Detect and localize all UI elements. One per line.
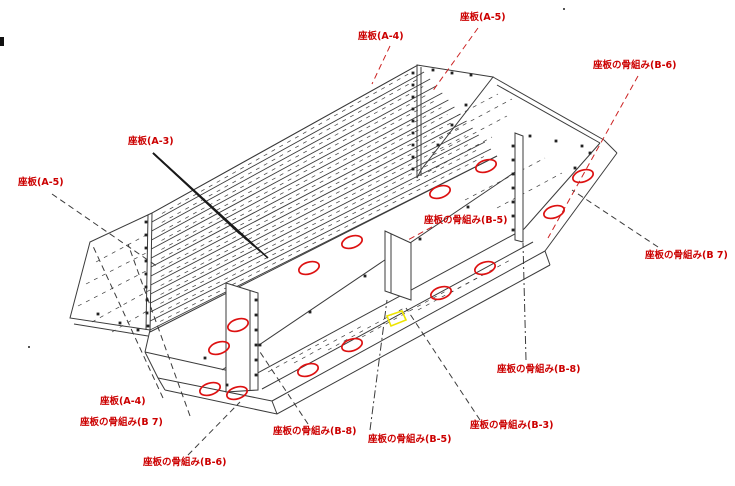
seat-slat-line bbox=[151, 100, 448, 258]
fastener-dot bbox=[529, 135, 532, 138]
fastener-dot bbox=[255, 374, 258, 377]
hidden-frame-dash bbox=[162, 80, 417, 223]
fastener-dot bbox=[467, 206, 470, 209]
fastener-dot bbox=[226, 384, 229, 387]
fastener-dot bbox=[145, 221, 148, 224]
fastener-dot bbox=[512, 201, 515, 204]
leader-line-zaban-a5-top bbox=[432, 28, 478, 92]
frame-edge bbox=[150, 213, 152, 332]
fastener-dot bbox=[432, 69, 435, 72]
fastener-dot bbox=[412, 96, 415, 99]
leader-line-honegumi-b6-bottom bbox=[188, 402, 240, 455]
frame-edge bbox=[545, 251, 550, 265]
part-label-honegumi-b5-top: 座板の骨組み(B-5) bbox=[424, 215, 507, 226]
part-label-honegumi-b5-bottom: 座板の骨組み(B-5) bbox=[368, 434, 451, 445]
fastener-dot bbox=[255, 359, 258, 362]
fastener-dot bbox=[309, 311, 312, 314]
frame-edge bbox=[145, 352, 158, 378]
leader-line-honegumi-b8-right bbox=[523, 243, 526, 360]
frame-edge bbox=[524, 143, 600, 229]
fastener-dot bbox=[589, 152, 592, 155]
fastener-dot bbox=[451, 72, 454, 75]
fastener-dot bbox=[465, 104, 468, 107]
fastener-dot bbox=[137, 329, 140, 332]
fastener-dot bbox=[255, 299, 258, 302]
fastener-dot bbox=[97, 313, 100, 316]
fastener-dot bbox=[146, 312, 149, 315]
fastener-dot bbox=[412, 132, 415, 135]
seat-slat-line bbox=[152, 79, 430, 231]
seat-slat-line bbox=[150, 142, 485, 312]
fastener-dot bbox=[255, 314, 258, 317]
scan-artifact bbox=[0, 37, 4, 46]
fastener-dot bbox=[512, 229, 515, 232]
hole-ellipse bbox=[428, 183, 452, 201]
frame-edge bbox=[158, 378, 165, 390]
frame-edge bbox=[226, 283, 258, 392]
hole-ellipse bbox=[429, 284, 453, 302]
part-label-zaban-a4-bottom: 座板(A-4) bbox=[100, 396, 146, 407]
frame-edge bbox=[493, 77, 604, 140]
part-label-zaban-a3: 座板(A-3) bbox=[128, 136, 174, 147]
leader-line-honegumi-b8-bottom bbox=[260, 352, 308, 424]
assembly-diagram-page: 座板(A-4)座板(A-5)座板の骨組み(B-6)座板(A-3)座板(A-5)座… bbox=[0, 0, 735, 486]
leader-line-zaban-a4-top bbox=[372, 46, 390, 84]
part-label-honegumi-b8-bottom: 座板の骨組み(B-8) bbox=[273, 426, 356, 437]
fastener-dot bbox=[204, 357, 207, 360]
hidden-frame-dash bbox=[162, 87, 424, 232]
fastener-dot bbox=[437, 144, 440, 147]
fastener-dot bbox=[581, 145, 584, 148]
fastener-dot bbox=[412, 108, 415, 111]
part-label-honegumi-b7-right: 座板の骨組み(B 7) bbox=[645, 250, 728, 261]
part-label-zaban-a5-top: 座板(A-5) bbox=[460, 12, 506, 23]
fastener-dot bbox=[145, 234, 148, 237]
hidden-frame-dash bbox=[268, 339, 328, 372]
fastener-dot bbox=[146, 299, 149, 302]
hole-ellipse bbox=[297, 259, 321, 277]
leader-line-zaban-a4-bottom bbox=[92, 244, 163, 398]
frame-edge bbox=[604, 140, 617, 153]
part-label-zaban-a5-left: 座板(A-5) bbox=[18, 177, 64, 188]
fastener-dot bbox=[512, 215, 515, 218]
hidden-frame-dash bbox=[449, 94, 498, 120]
fastener-dot bbox=[470, 74, 473, 77]
fastener-dot bbox=[145, 260, 148, 263]
frame-edge bbox=[497, 85, 600, 143]
fastener-dot bbox=[145, 247, 148, 250]
fastener-dot bbox=[147, 325, 150, 328]
hidden-frame-dash bbox=[160, 150, 478, 313]
fastener-dot bbox=[412, 156, 415, 159]
fastener-dot bbox=[364, 275, 367, 278]
frame-edge bbox=[545, 153, 617, 251]
hidden-frame-dash bbox=[161, 94, 429, 241]
fastener-dot bbox=[255, 329, 258, 332]
part-label-honegumi-b6-top: 座板の骨組み(B-6) bbox=[593, 60, 676, 71]
fastener-dot bbox=[412, 120, 415, 123]
fastener-dot bbox=[412, 144, 415, 147]
part-label-zaban-a4-top: 座板(A-4) bbox=[358, 31, 404, 42]
leader-line-zaban-a5-left bbox=[52, 194, 158, 267]
fastener-dot bbox=[451, 124, 454, 127]
assembly-drawing bbox=[0, 0, 735, 486]
fastener-dot bbox=[574, 167, 577, 170]
hole-ellipse bbox=[340, 233, 364, 251]
frame-edge bbox=[515, 133, 523, 242]
part-label-honegumi-b7-bottom: 座板の骨組み(B 7) bbox=[80, 417, 163, 428]
fastener-dot bbox=[512, 173, 515, 176]
fastener-dot bbox=[145, 286, 148, 289]
fastener-dot bbox=[412, 168, 415, 171]
fastener-dot bbox=[512, 187, 515, 190]
hidden-frame-dash bbox=[161, 136, 466, 295]
part-label-honegumi-b3-bottom: 座板の骨組み(B-3) bbox=[470, 420, 553, 431]
frame-edge bbox=[385, 231, 411, 300]
leader-line-honegumi-b3-bottom bbox=[406, 308, 480, 420]
fastener-dot bbox=[419, 238, 422, 241]
frame-edge bbox=[272, 401, 277, 414]
hidden-frame-dash bbox=[428, 137, 492, 172]
leader-line-honegumi-b5-bottom bbox=[370, 300, 387, 430]
hidden-frame-dash bbox=[86, 252, 148, 284]
frame-edge bbox=[145, 330, 150, 352]
seat-slat-line bbox=[150, 149, 491, 321]
part-label-honegumi-b6-bottom: 座板の骨組み(B-6) bbox=[143, 457, 226, 468]
scan-artifact bbox=[563, 8, 565, 10]
scan-artifact bbox=[28, 346, 30, 348]
leader-line-honegumi-b6-top bbox=[548, 76, 638, 238]
fastener-dot bbox=[412, 84, 415, 87]
seat-slat-line bbox=[151, 93, 442, 249]
fastener-dot bbox=[255, 344, 258, 347]
fastener-dot bbox=[555, 140, 558, 143]
part-label-honegumi-b8-right: 座板の骨組み(B-8) bbox=[497, 364, 580, 375]
fastener-dot bbox=[145, 273, 148, 276]
fastener-dot bbox=[119, 322, 122, 325]
fastener-dot bbox=[412, 72, 415, 75]
fastener-dot bbox=[512, 159, 515, 162]
hidden-frame-dash bbox=[96, 234, 148, 262]
frame-edge bbox=[70, 213, 152, 330]
hidden-frame-dash bbox=[78, 270, 148, 306]
fastener-dot bbox=[259, 344, 262, 347]
hidden-frame-dash bbox=[162, 73, 411, 214]
leader-line-honegumi-b7-right bbox=[572, 190, 658, 247]
fastener-dot bbox=[512, 145, 515, 148]
